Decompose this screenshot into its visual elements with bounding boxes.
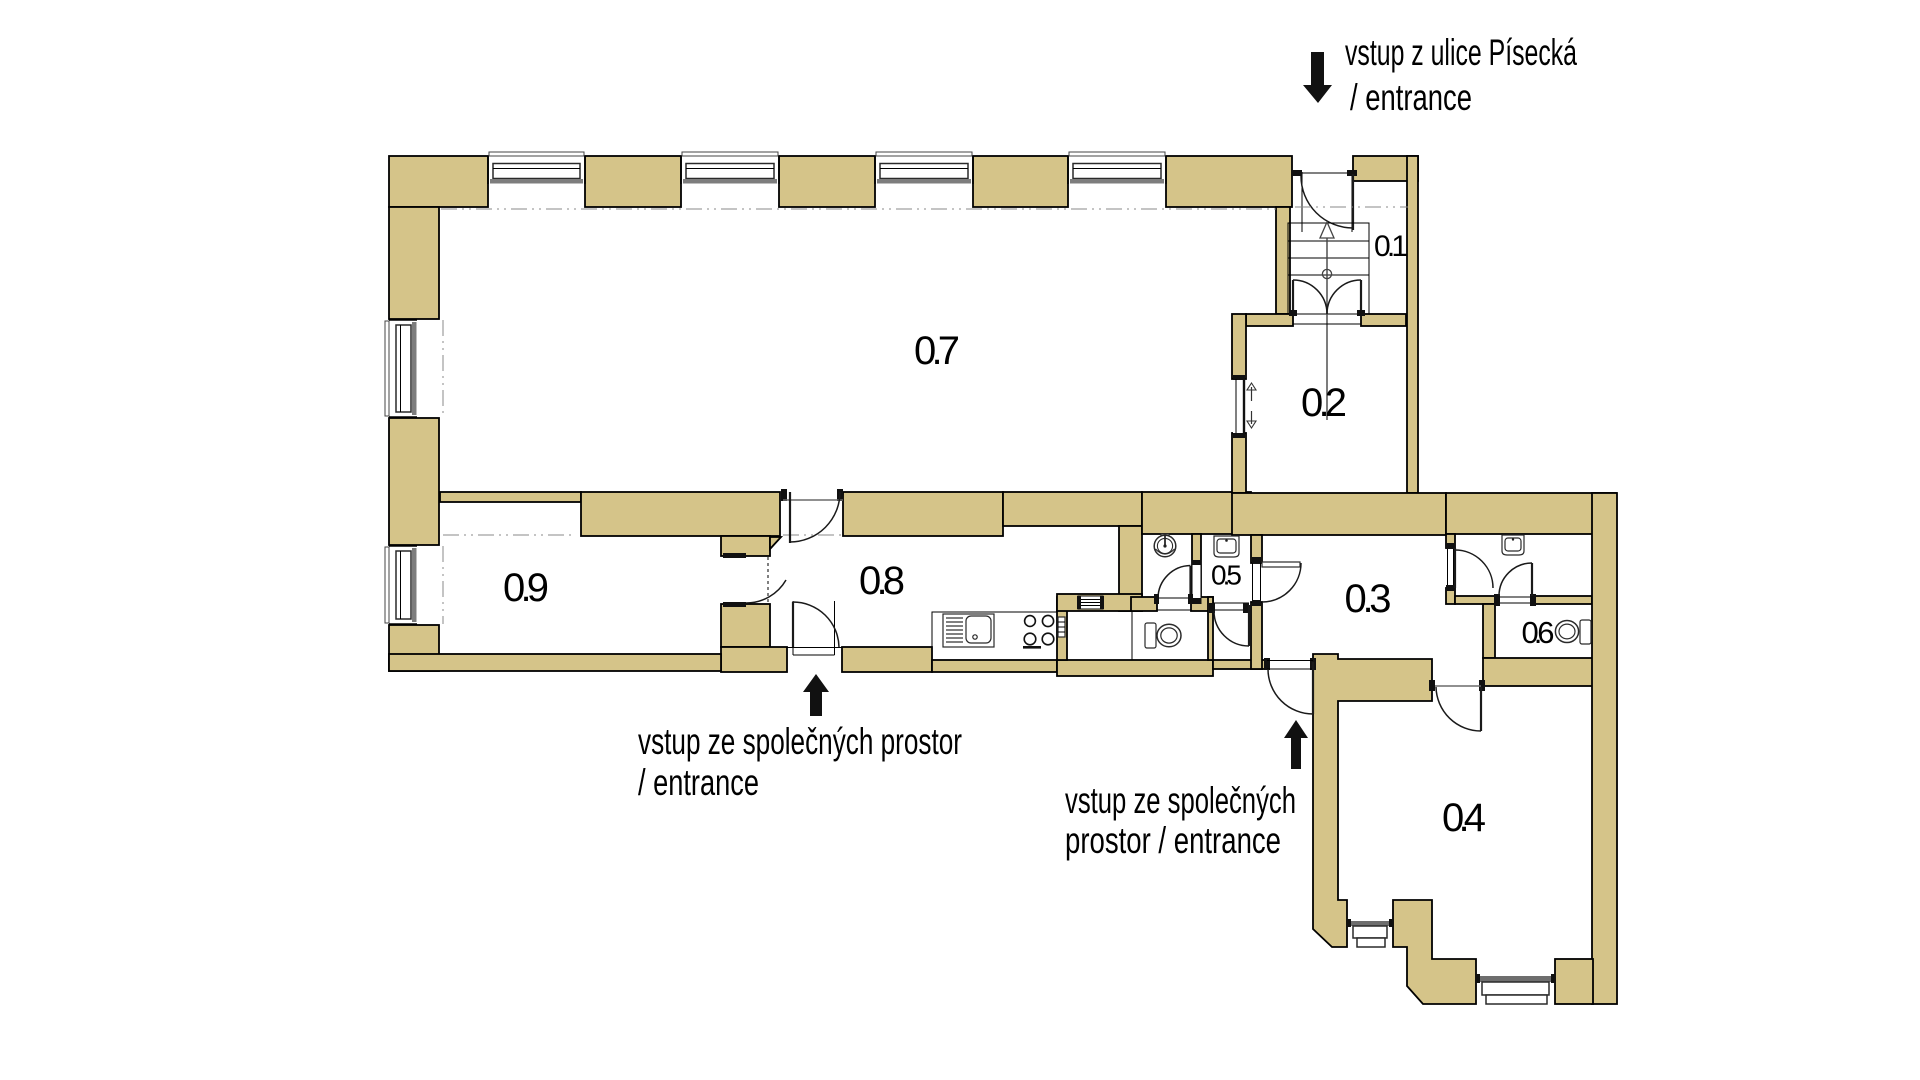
- svg-text:0.4: 0.4: [1442, 796, 1486, 840]
- svg-text:0.3: 0.3: [1345, 577, 1392, 621]
- svg-text:vstup ze společných: vstup ze společných: [1065, 780, 1296, 821]
- svg-text:0.1: 0.1: [1374, 230, 1408, 263]
- svg-text:0.9: 0.9: [503, 566, 549, 610]
- svg-text:0.7: 0.7: [914, 329, 960, 373]
- svg-text:vstup ze společných prostor: vstup ze společných prostor: [638, 721, 962, 762]
- svg-text:0.6: 0.6: [1522, 615, 1555, 650]
- svg-text:0.2: 0.2: [1301, 381, 1347, 425]
- svg-text:vstup z ulice Písecká: vstup z ulice Písecká: [1345, 32, 1577, 73]
- svg-text:0.8: 0.8: [859, 559, 905, 603]
- svg-text:prostor / entrance: prostor / entrance: [1065, 820, 1281, 861]
- svg-text:/ entrance: / entrance: [638, 762, 759, 803]
- svg-text:/ entrance: / entrance: [1350, 77, 1472, 118]
- svg-text:0.5: 0.5: [1211, 560, 1242, 591]
